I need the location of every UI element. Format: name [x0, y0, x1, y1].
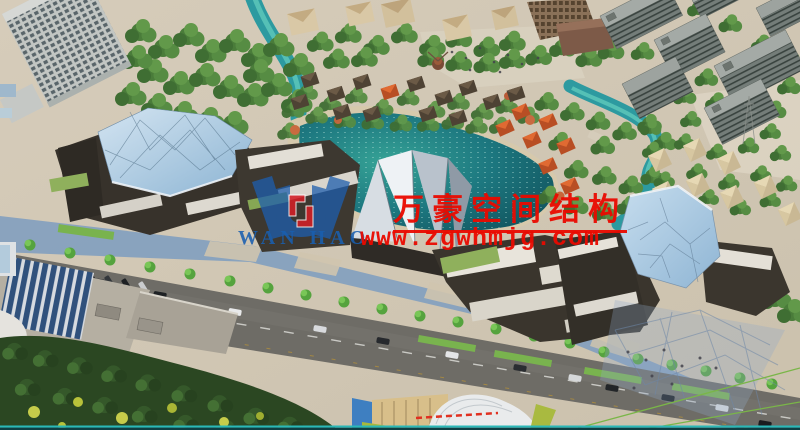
watermark-logo-text: WAN HAO — [238, 227, 358, 250]
aerial-rendering: WAN HAO 万豪空间结构 www.zgwhmjg.com — [0, 0, 800, 430]
bottom-edge-strip — [0, 426, 800, 430]
watermark-website-url: www.zgwhmjg.com — [360, 224, 600, 253]
